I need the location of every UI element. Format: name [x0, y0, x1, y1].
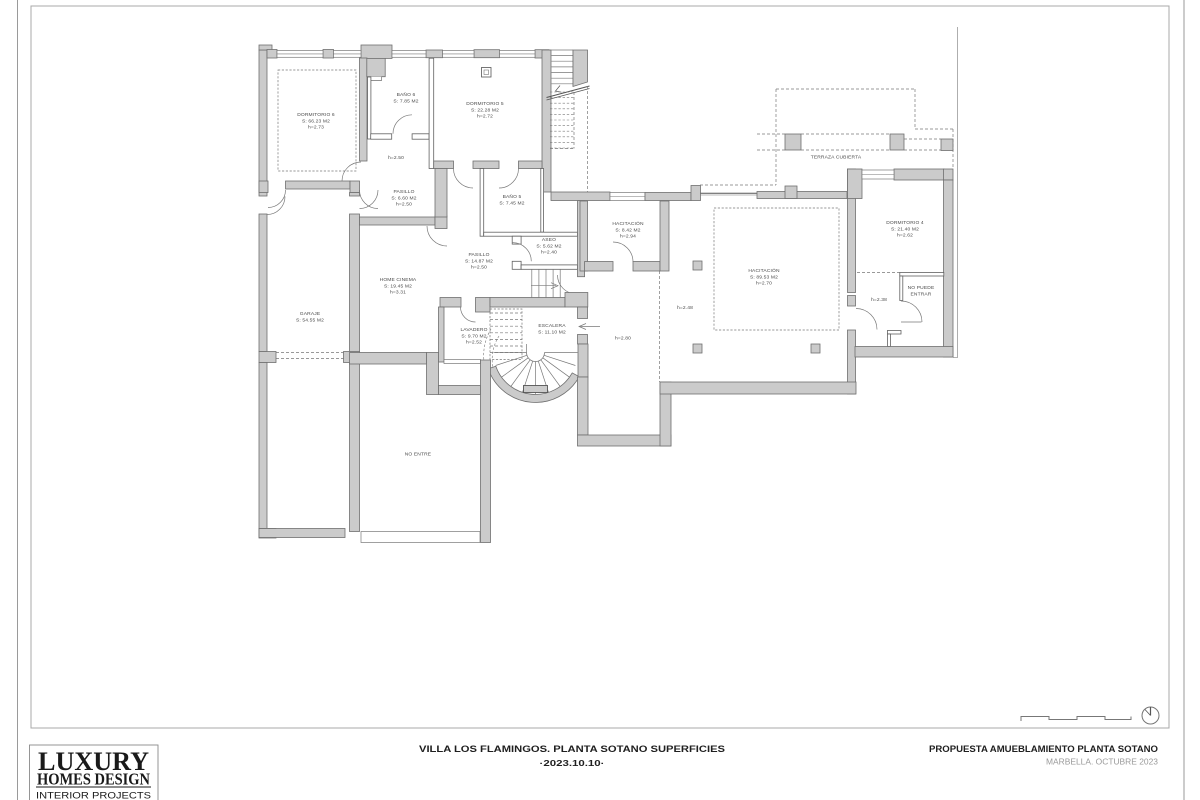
svg-text:PROPUESTA AMUEBLAMIENTO PLANTA: PROPUESTA AMUEBLAMIENTO PLANTA SOTANO	[929, 744, 1158, 754]
svg-text:h=2.48: h=2.48	[677, 305, 693, 311]
svg-text:BAÑO 6S: 7.85 M2: BAÑO 6S: 7.85 M2	[393, 91, 418, 104]
svg-text:VILLA LOS FLAMINGOS. PLANTA SO: VILLA LOS FLAMINGOS. PLANTA SOTANO SUPER…	[419, 743, 725, 754]
svg-text:NO ENTRE: NO ENTRE	[405, 452, 432, 458]
svg-text:TERRAZA CUBIERTA: TERRAZA CUBIERTA	[811, 155, 862, 161]
svg-text:HOMES DESIGN: HOMES DESIGN	[37, 770, 150, 789]
svg-text:BAÑO 5S: 7.45 M2: BAÑO 5S: 7.45 M2	[499, 193, 524, 206]
svg-text:h=2.80: h=2.80	[615, 336, 631, 342]
svg-text:INTERIOR PROJECTS: INTERIOR PROJECTS	[36, 791, 151, 800]
svg-text:h=2.38: h=2.38	[871, 297, 887, 303]
svg-text:MARBELLA. OCTUBRE 2023: MARBELLA. OCTUBRE 2023	[1046, 758, 1159, 767]
svg-text:h=2.50: h=2.50	[388, 155, 404, 161]
svg-text:·2023.10.10·: ·2023.10.10·	[540, 758, 605, 768]
